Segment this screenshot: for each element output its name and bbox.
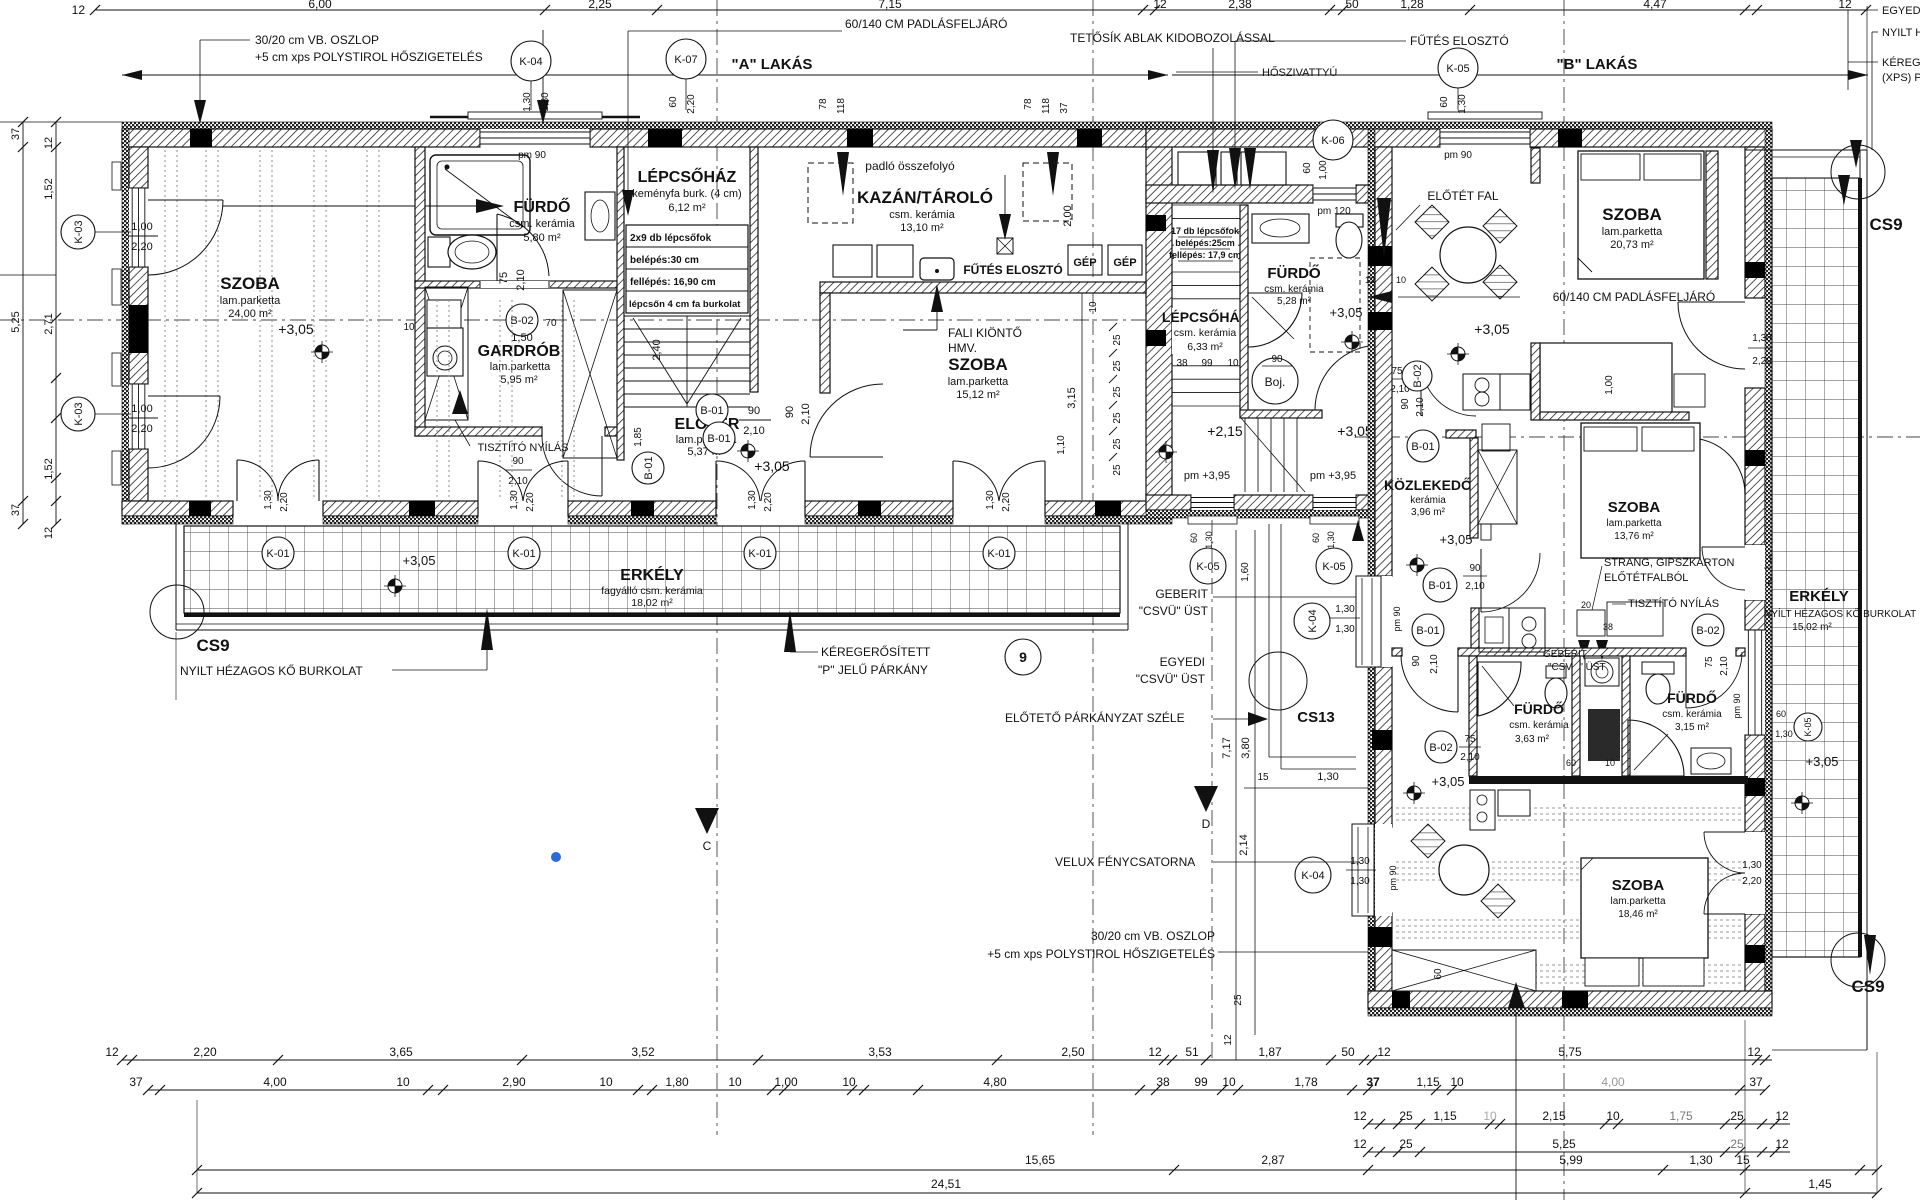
svg-text:C: C (703, 839, 712, 853)
svg-text:90: 90 (784, 406, 796, 418)
svg-text:1,30: 1,30 (540, 92, 551, 112)
svg-text:lam.parketta: lam.parketta (1610, 896, 1665, 907)
svg-text:1,30: 1,30 (1317, 771, 1338, 783)
svg-text:"B" LAKÁS: "B" LAKÁS (1557, 56, 1638, 73)
svg-text:30/20 cm VB. OSZLOP: 30/20 cm VB. OSZLOP (255, 33, 379, 47)
svg-text:K-05: K-05 (1196, 561, 1219, 573)
svg-text:60: 60 (1433, 968, 1444, 980)
svg-text:25: 25 (1730, 1137, 1744, 1151)
svg-text:10: 10 (1606, 1109, 1620, 1123)
svg-text:B-02: B-02 (1429, 742, 1452, 754)
svg-text:FALI KIÖNTŐ: FALI KIÖNTŐ (948, 325, 1022, 340)
svg-text:csm. kerámia: csm. kerámia (889, 209, 955, 221)
svg-text:SZOBA: SZOBA (1602, 205, 1662, 224)
svg-text:20,73 m²: 20,73 m² (1610, 239, 1654, 251)
svg-text:+5 cm xps POLYSTIROL HŐSZIGETE: +5 cm xps POLYSTIROL HŐSZIGETELÉS (255, 49, 483, 64)
svg-text:90: 90 (1400, 398, 1411, 410)
svg-text:+3,05: +3,05 (278, 321, 314, 337)
svg-text:TISZTÍTÓ NYÍLÁS: TISZTÍTÓ NYÍLÁS (477, 441, 568, 454)
svg-text:ELŐTÉTFALBÓL: ELŐTÉTFALBÓL (1604, 570, 1688, 584)
svg-text:2,00: 2,00 (1062, 205, 1074, 226)
svg-text:3,63 m²: 3,63 m² (1515, 734, 1550, 745)
svg-text:CS9: CS9 (1851, 977, 1884, 996)
svg-text:75: 75 (1391, 366, 1403, 377)
svg-text:1,30: 1,30 (263, 490, 274, 510)
svg-text:99: 99 (1201, 358, 1213, 369)
svg-text:2,20: 2,20 (131, 423, 152, 435)
svg-text:1,45: 1,45 (1808, 1177, 1832, 1191)
svg-text:10: 10 (1227, 358, 1239, 369)
svg-text:13,76 m²: 13,76 m² (1614, 531, 1654, 542)
svg-text:2,10: 2,10 (1415, 397, 1426, 417)
svg-text:30/20 cm VB. OSZLOP: 30/20 cm VB. OSZLOP (1091, 929, 1215, 943)
svg-text:37: 37 (10, 128, 22, 140)
svg-text:lam.parketta: lam.parketta (948, 376, 1009, 388)
svg-text:60: 60 (1566, 758, 1576, 768)
svg-text:K-05: K-05 (1446, 63, 1469, 75)
svg-text:5,80 m²: 5,80 m² (523, 232, 561, 244)
svg-text:2,38: 2,38 (1228, 0, 1252, 11)
svg-text:10: 10 (1605, 758, 1615, 768)
svg-text:2,15: 2,15 (1542, 1109, 1566, 1123)
svg-text:10: 10 (1396, 275, 1406, 285)
svg-text:10: 10 (1088, 301, 1099, 313)
svg-text:3,80: 3,80 (1240, 737, 1252, 758)
svg-text:FÜRDŐ: FÜRDŐ (514, 197, 571, 216)
svg-text:2,90: 2,90 (502, 1075, 526, 1089)
svg-text:78: 78 (818, 98, 829, 110)
svg-text:pm 90: pm 90 (1388, 865, 1398, 890)
svg-text:2,50: 2,50 (1061, 1045, 1085, 1059)
svg-text:9: 9 (1019, 649, 1027, 665)
svg-text:TETŐSÍK ABLAK KIDOBOZOLÁSSAL: TETŐSÍK ABLAK KIDOBOZOLÁSSAL (1070, 30, 1275, 45)
svg-text:1,30: 1,30 (1335, 604, 1355, 615)
svg-text:4,00: 4,00 (263, 1075, 287, 1089)
svg-text:38: 38 (1156, 1075, 1170, 1089)
svg-text:2,40: 2,40 (651, 339, 663, 360)
svg-text:SZOBA: SZOBA (1612, 877, 1665, 894)
svg-text:15,12 m²: 15,12 m² (956, 389, 1000, 401)
svg-text:B-01: B-01 (1416, 625, 1439, 637)
svg-text:12: 12 (1775, 1137, 1789, 1151)
svg-text:FÜRDŐ: FÜRDŐ (1514, 700, 1564, 717)
svg-text:B-01: B-01 (700, 405, 723, 417)
svg-text:2,20: 2,20 (193, 1045, 217, 1059)
svg-text:Boj.: Boj. (1265, 375, 1286, 389)
svg-text:B-02: B-02 (510, 315, 533, 327)
svg-text:K-04: K-04 (519, 56, 542, 68)
svg-text:1,30: 1,30 (1335, 624, 1355, 635)
svg-text:5,99: 5,99 (1559, 1153, 1583, 1167)
svg-text:fellépés: 17,9 cm: fellépés: 17,9 cm (1169, 250, 1241, 260)
svg-text:SZOBA: SZOBA (948, 355, 1008, 374)
svg-text:10: 10 (599, 1075, 613, 1089)
svg-text:VELUX FÉNYCSATORNA: VELUX FÉNYCSATORNA (1055, 854, 1195, 869)
svg-text:1,30: 1,30 (1457, 94, 1468, 114)
svg-text:20: 20 (1581, 600, 1591, 610)
svg-text:+3,05: +3,05 (1432, 774, 1465, 789)
svg-text:75: 75 (1464, 734, 1476, 745)
svg-text:lam.parketta: lam.parketta (490, 361, 551, 373)
svg-text:1,52: 1,52 (43, 178, 55, 199)
svg-text:CS13: CS13 (1297, 709, 1335, 726)
svg-text:12: 12 (1223, 1034, 1234, 1046)
svg-text:15: 15 (1736, 1153, 1750, 1167)
svg-text:38: 38 (1176, 358, 1188, 369)
svg-text:1,30: 1,30 (1752, 333, 1772, 344)
svg-text:6,12 m²: 6,12 m² (668, 202, 706, 214)
svg-text:37: 37 (10, 504, 22, 516)
svg-text:1,30: 1,30 (1204, 531, 1214, 549)
svg-text:7,17: 7,17 (1221, 737, 1233, 758)
svg-text:1,30: 1,30 (1350, 876, 1370, 887)
svg-text:K-05: K-05 (1803, 717, 1813, 736)
svg-text:"CSVÜ" ÜST: "CSVÜ" ÜST (1139, 604, 1209, 618)
svg-text:GÉP: GÉP (1073, 256, 1096, 269)
svg-text:18,46 m²: 18,46 m² (1618, 909, 1658, 920)
svg-text:51: 51 (1185, 1045, 1199, 1059)
svg-text:(XPS) P: (XPS) P (1882, 72, 1920, 84)
svg-text:ELŐTÉT FAL: ELŐTÉT FAL (1427, 188, 1498, 203)
svg-text:+2,15: +2,15 (1207, 423, 1243, 439)
svg-text:EGYED: EGYED (1882, 5, 1920, 17)
svg-text:K-06: K-06 (1321, 135, 1344, 147)
svg-text:1,15: 1,15 (1433, 1109, 1457, 1123)
svg-text:+5 cm xps POLYSTIROL HŐSZIGETE: +5 cm xps POLYSTIROL HŐSZIGETELÉS (987, 946, 1215, 961)
svg-text:1,30: 1,30 (522, 92, 533, 112)
svg-text:"P" JELŰ PÁRKÁNY: "P" JELŰ PÁRKÁNY (818, 662, 928, 677)
svg-text:10: 10 (1450, 1075, 1464, 1089)
svg-text:keményfa burk. (4 cm): keményfa burk. (4 cm) (632, 188, 741, 200)
svg-text:KAZÁN/TÁROLÓ: KAZÁN/TÁROLÓ (857, 188, 993, 207)
svg-text:60: 60 (668, 96, 679, 108)
svg-text:D: D (1202, 817, 1211, 831)
svg-text:4,00: 4,00 (1601, 1075, 1625, 1089)
svg-text:lam.parketta: lam.parketta (1606, 518, 1661, 529)
svg-text:37: 37 (1749, 1075, 1763, 1089)
svg-text:18,02 m²: 18,02 m² (631, 597, 673, 609)
svg-text:csm. kerámia: csm. kerámia (1662, 709, 1722, 720)
svg-text:1,30: 1,30 (509, 490, 520, 510)
svg-text:60: 60 (1302, 162, 1313, 174)
svg-text:B-01: B-01 (1428, 580, 1451, 592)
svg-text:csm. kerámia: csm. kerámia (1509, 720, 1569, 731)
svg-text:6,33 m²: 6,33 m² (1187, 341, 1223, 353)
svg-text:2,10: 2,10 (1429, 654, 1440, 674)
svg-text:ERKÉLY: ERKÉLY (620, 565, 684, 584)
svg-text:5,25: 5,25 (1552, 1137, 1576, 1151)
svg-text:B-02: B-02 (1696, 625, 1719, 637)
svg-text:2,20: 2,20 (525, 492, 536, 512)
svg-text:lam.parketta: lam.parketta (1602, 226, 1663, 238)
svg-text:90: 90 (748, 405, 760, 417)
svg-text:90: 90 (1271, 354, 1283, 365)
svg-text:padló összefolyó: padló összefolyó (865, 159, 955, 173)
svg-text:K-01: K-01 (987, 548, 1010, 560)
svg-text:10: 10 (403, 322, 415, 333)
svg-text:12: 12 (1148, 1045, 1162, 1059)
svg-text:2,87: 2,87 (1261, 1153, 1285, 1167)
svg-text:"A" LAKÁS: "A" LAKÁS (732, 56, 813, 73)
svg-text:25: 25 (1112, 438, 1123, 450)
svg-text:10: 10 (1483, 1109, 1497, 1123)
svg-text:15,65: 15,65 (1025, 1153, 1055, 1167)
svg-text:NYÍLT HÉZAGOS KŐ BURKOLAT: NYÍLT HÉZAGOS KŐ BURKOLAT (1764, 606, 1916, 620)
svg-text:25: 25 (1730, 1109, 1744, 1123)
svg-text:2x9 db lépcsőfok: 2x9 db lépcsőfok (630, 233, 712, 244)
svg-text:B-02: B-02 (1412, 364, 1424, 387)
svg-text:HŐSZIVATTYÚ: HŐSZIVATTYÚ (1262, 65, 1337, 79)
svg-text:38: 38 (1603, 622, 1613, 632)
svg-text:12: 12 (1775, 1109, 1789, 1123)
svg-text:12: 12 (1838, 0, 1852, 11)
svg-text:3,53: 3,53 (868, 1045, 892, 1059)
svg-text:K-04: K-04 (1307, 609, 1319, 632)
svg-text:24,51: 24,51 (931, 1177, 961, 1191)
svg-text:75: 75 (1704, 656, 1715, 668)
svg-text:2,20: 2,20 (1742, 876, 1762, 887)
svg-text:STRANG, GIPSZKARTON: STRANG, GIPSZKARTON (1604, 557, 1734, 569)
svg-text:KÉREG: KÉREG (1882, 56, 1920, 69)
svg-text:5,28 m²: 5,28 m² (1277, 296, 1312, 307)
svg-text:1,30: 1,30 (1775, 729, 1793, 739)
svg-text:1,30: 1,30 (1350, 856, 1370, 867)
svg-text:GARDRÓB: GARDRÓB (478, 341, 561, 360)
svg-text:37: 37 (1366, 1075, 1380, 1089)
svg-text:pm +3,95: pm +3,95 (1310, 470, 1356, 482)
svg-text:pm 90: pm 90 (1444, 150, 1472, 161)
svg-text:2,20: 2,20 (1752, 356, 1772, 367)
svg-text:10: 10 (728, 1075, 742, 1089)
svg-text:1,15: 1,15 (1416, 1075, 1440, 1089)
svg-text:kerámia: kerámia (1410, 495, 1446, 506)
svg-text:1,30: 1,30 (1326, 531, 1336, 549)
svg-text:1,30: 1,30 (985, 490, 996, 510)
svg-text:NYILT H: NYILT H (1882, 27, 1920, 39)
svg-text:10: 10 (396, 1075, 410, 1089)
svg-text:pm 90: pm 90 (1732, 693, 1742, 718)
svg-text:10: 10 (1222, 1075, 1236, 1089)
svg-text:LÉPCSŐHÁZ: LÉPCSŐHÁZ (1162, 308, 1249, 325)
svg-text:1,75: 1,75 (1669, 1109, 1693, 1123)
svg-text:1,10: 1,10 (1056, 435, 1067, 455)
svg-text:EGYEDI: EGYEDI (1160, 655, 1205, 669)
svg-text:2,20: 2,20 (686, 94, 697, 114)
svg-text:60: 60 (1776, 709, 1786, 719)
svg-text:1,80: 1,80 (665, 1075, 689, 1089)
svg-text:K-01: K-01 (512, 548, 535, 560)
svg-text:37: 37 (1059, 102, 1070, 114)
svg-text:60: 60 (1439, 96, 1450, 108)
svg-text:3,15: 3,15 (1066, 387, 1078, 408)
svg-text:12: 12 (43, 137, 55, 149)
svg-text:15: 15 (1257, 772, 1269, 783)
svg-text:B-01: B-01 (707, 433, 730, 445)
svg-text:KÖZLEKEDŐ: KÖZLEKEDŐ (1384, 476, 1472, 493)
svg-text:1,00: 1,00 (1318, 160, 1329, 180)
svg-text:12: 12 (72, 3, 86, 17)
svg-text:K-04: K-04 (1301, 870, 1324, 882)
svg-text:1,30: 1,30 (747, 490, 758, 510)
svg-text:lépcsőn 4 cm fa burkolat: lépcsőn 4 cm fa burkolat (629, 299, 741, 310)
svg-text:2,71: 2,71 (43, 313, 55, 334)
svg-text:FÜRDŐ: FÜRDŐ (1267, 264, 1321, 282)
svg-text:1,00: 1,00 (131, 221, 152, 233)
svg-text:2,10: 2,10 (743, 425, 764, 437)
svg-text:24,00 m²: 24,00 m² (228, 308, 272, 320)
svg-text:13,10 m²: 13,10 m² (900, 222, 944, 234)
svg-text:SZOBA: SZOBA (1608, 499, 1661, 516)
svg-text:25: 25 (1233, 994, 1244, 1006)
svg-text:LÉPCSŐHÁZ: LÉPCSŐHÁZ (638, 167, 737, 186)
svg-text:+3,05: +3,05 (1440, 532, 1473, 547)
svg-text:15,02 m²: 15,02 m² (1792, 622, 1832, 633)
svg-text:25: 25 (1112, 360, 1123, 372)
svg-text:csm. kerámia: csm. kerámia (1174, 327, 1237, 339)
svg-text:3,96 m²: 3,96 m² (1411, 507, 1446, 518)
svg-text:2,10: 2,10 (800, 403, 812, 424)
svg-text:2,10: 2,10 (1719, 656, 1730, 676)
svg-text:25: 25 (1112, 334, 1123, 346)
svg-text:fagyálló csm. kerámia: fagyálló csm. kerámia (601, 585, 703, 597)
svg-text:B-01: B-01 (1411, 441, 1434, 453)
svg-text:1,00: 1,00 (1604, 375, 1615, 395)
svg-text:ELŐTETŐ PÁRKÁNYZAT SZÉLE: ELŐTETŐ PÁRKÁNYZAT SZÉLE (1005, 710, 1185, 725)
svg-text:60: 60 (1311, 533, 1321, 543)
svg-text:2,10: 2,10 (515, 269, 527, 290)
svg-text:SZOBA: SZOBA (220, 274, 280, 293)
svg-text:B-01: B-01 (643, 456, 655, 479)
svg-text:60/140 CM PADLÁSFELJÁRÓ: 60/140 CM PADLÁSFELJÁRÓ (845, 16, 1008, 31)
svg-text:50: 50 (1341, 1045, 1355, 1059)
svg-text:K-05: K-05 (1322, 561, 1345, 573)
svg-text:70: 70 (545, 318, 557, 329)
svg-text:3,15 m²: 3,15 m² (1675, 722, 1710, 733)
svg-text:CS9: CS9 (196, 636, 229, 655)
svg-text:118: 118 (1041, 98, 1052, 114)
svg-text:12: 12 (1377, 1045, 1391, 1059)
svg-text:KÉREGERŐSÍTETT: KÉREGERŐSÍTETT (821, 644, 931, 659)
svg-text:K-03: K-03 (73, 402, 85, 425)
svg-text:belépés:30 cm: belépés:30 cm (630, 255, 699, 266)
svg-text:25: 25 (1112, 386, 1123, 398)
svg-text:25: 25 (1399, 1109, 1413, 1123)
svg-text:25: 25 (1399, 1137, 1413, 1151)
svg-text:2,14: 2,14 (1238, 834, 1250, 855)
svg-text:CS9: CS9 (1869, 215, 1902, 234)
svg-text:K-01: K-01 (748, 548, 771, 560)
svg-text:6,00: 6,00 (308, 0, 332, 11)
svg-text:GÉP: GÉP (1113, 256, 1136, 269)
svg-text:1,30: 1,30 (1689, 1153, 1713, 1167)
svg-text:4,80: 4,80 (983, 1075, 1007, 1089)
svg-text:FŰTÉS ELOSZTÓ: FŰTÉS ELOSZTÓ (1410, 33, 1509, 48)
svg-text:pm 90: pm 90 (1392, 606, 1402, 631)
svg-text:99: 99 (1194, 1075, 1208, 1089)
svg-text:12: 12 (1353, 1137, 1367, 1151)
svg-text:K-03: K-03 (73, 220, 85, 243)
svg-text:12: 12 (43, 527, 55, 539)
svg-text:5,25: 5,25 (10, 311, 22, 332)
svg-text:5,95 m²: 5,95 m² (500, 374, 538, 386)
svg-text:1,78: 1,78 (1294, 1075, 1318, 1089)
svg-text:K-07: K-07 (674, 54, 697, 66)
svg-text:2,10: 2,10 (1460, 752, 1480, 763)
svg-text:1,00: 1,00 (774, 1075, 798, 1089)
svg-text:10: 10 (842, 1075, 856, 1089)
svg-text:3,65: 3,65 (389, 1045, 413, 1059)
svg-text:4,47: 4,47 (1643, 0, 1667, 11)
svg-text:2,20: 2,20 (131, 241, 152, 253)
svg-text:1,87: 1,87 (1258, 1045, 1282, 1059)
svg-text:25: 25 (1112, 412, 1123, 424)
svg-text:17 db lépcsőfok: 17 db lépcsőfok (1171, 226, 1240, 236)
svg-text:1,28: 1,28 (1400, 0, 1424, 11)
svg-text:90: 90 (1469, 563, 1481, 574)
svg-text:FŰTÉS ELOSZTÓ: FŰTÉS ELOSZTÓ (963, 262, 1062, 277)
svg-text:2,20: 2,20 (279, 492, 290, 512)
svg-text:12: 12 (1353, 1109, 1367, 1123)
svg-text:118: 118 (836, 98, 847, 114)
svg-text:50: 50 (1345, 0, 1359, 11)
svg-text:60: 60 (1189, 533, 1199, 543)
svg-text:2,10: 2,10 (1465, 581, 1485, 592)
svg-text:2,20: 2,20 (763, 492, 774, 512)
svg-text:5,75: 5,75 (1558, 1045, 1582, 1059)
svg-text:+3,05: +3,05 (1806, 754, 1839, 769)
svg-text:1,30: 1,30 (1742, 860, 1762, 871)
svg-text:+3,05: +3,05 (1337, 423, 1373, 439)
svg-text:12: 12 (1747, 1045, 1761, 1059)
svg-text:GEBERIT: GEBERIT (1155, 587, 1208, 601)
svg-text:12: 12 (105, 1045, 119, 1059)
svg-text:1,52: 1,52 (43, 458, 55, 479)
svg-text:7,15: 7,15 (878, 0, 902, 11)
svg-text:NYILT HÉZAGOS KŐ BURKOLAT: NYILT HÉZAGOS KŐ BURKOLAT (180, 663, 363, 678)
svg-text:HMV.: HMV. (948, 341, 977, 355)
svg-text:K-01: K-01 (266, 548, 289, 560)
svg-text:fellépés: 16,90 cm: fellépés: 16,90 cm (630, 277, 716, 288)
svg-text:12: 12 (1365, 275, 1375, 285)
svg-text:lam.parketta: lam.parketta (220, 295, 281, 307)
svg-text:1,00: 1,00 (131, 403, 152, 415)
svg-text:2,20: 2,20 (1001, 492, 1012, 512)
svg-text:pm 120: pm 120 (1317, 206, 1351, 217)
svg-text:ERKÉLY: ERKÉLY (1789, 588, 1848, 605)
svg-text:3,52: 3,52 (631, 1045, 655, 1059)
svg-text:1,60: 1,60 (1240, 562, 1251, 582)
svg-text:belépés:25cm: belépés:25cm (1175, 238, 1235, 248)
svg-text:12: 12 (1153, 0, 1167, 11)
svg-text:TISZTÍTÓ NYÍLÁS: TISZTÍTÓ NYÍLÁS (1628, 597, 1719, 610)
svg-text:25: 25 (1112, 464, 1123, 476)
svg-text:90: 90 (1411, 655, 1422, 667)
svg-text:1,85: 1,85 (633, 427, 644, 447)
svg-text:pm +3,95: pm +3,95 (1184, 470, 1230, 482)
svg-text:2,25: 2,25 (588, 0, 612, 11)
svg-text:+3,05: +3,05 (1330, 305, 1363, 320)
svg-text:"CSVÜ" ÜST: "CSVÜ" ÜST (1136, 672, 1206, 686)
svg-text:90: 90 (512, 456, 524, 467)
svg-text:+3,05: +3,05 (1474, 321, 1510, 337)
svg-text:78: 78 (1023, 98, 1034, 110)
svg-text:37: 37 (129, 1075, 143, 1089)
svg-text:75: 75 (498, 272, 510, 284)
svg-text:+3,05: +3,05 (403, 553, 436, 568)
